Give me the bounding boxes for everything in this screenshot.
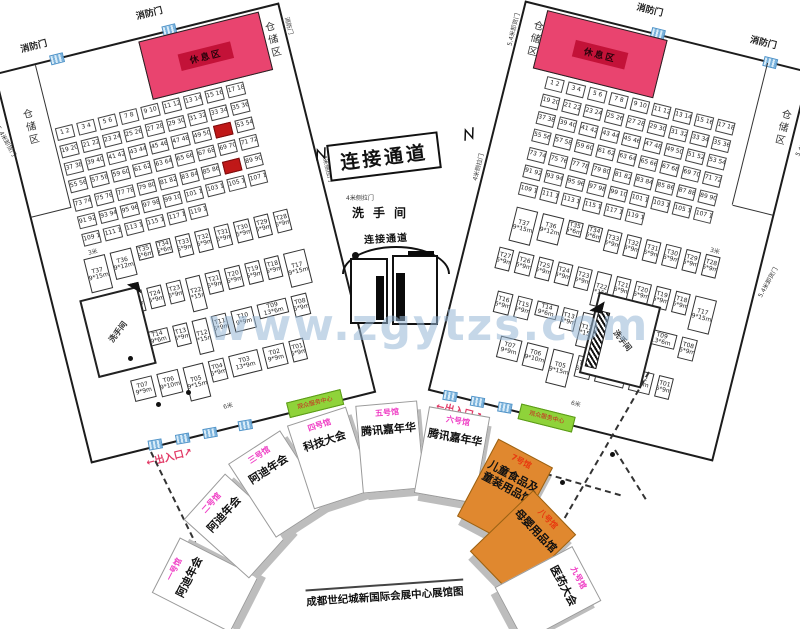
t-booth: T206*9m (224, 265, 244, 290)
restroom-wall (376, 276, 384, 320)
small-booth: 47 48 (170, 133, 191, 150)
small-booth: 99 100 (162, 191, 183, 208)
small-booth: 45 46 (149, 138, 170, 155)
t-booth: T116*9m (211, 313, 231, 338)
small-booth: 87 88 (222, 157, 243, 174)
aisle-label: 6米 (222, 400, 234, 411)
small-booth: 31 32 (668, 126, 689, 143)
small-booth: 51 52 (685, 149, 706, 166)
small-booth: 83 84 (179, 168, 200, 185)
small-booth: 53 54 (706, 154, 727, 171)
small-booth: 51 52 (213, 122, 234, 139)
small-booth: 115 116 (145, 214, 166, 231)
small-booth: 3 4 (566, 81, 587, 98)
plan-dot (156, 402, 161, 407)
t-booth: T356*6m (565, 220, 583, 238)
small-booth: 77 78 (569, 157, 590, 174)
t-booth: T336*9m (174, 233, 194, 258)
t-booth: T086*9m (291, 293, 311, 318)
t-booth: T286*9m (272, 209, 292, 234)
small-booth: 91 92 (77, 212, 98, 229)
outer-restroom-label: 洗手间 (106, 319, 129, 345)
unload-door-label: 5.4米卸货门 (0, 126, 16, 158)
small-booth: 43 44 (128, 143, 149, 160)
hall-number-label: 六号馆 (445, 414, 471, 429)
t-booth: T186*9m (671, 291, 691, 316)
t-booth: T379*15m (508, 207, 538, 246)
storage-divider (732, 205, 772, 216)
small-booth: 111 112 (103, 224, 124, 241)
small-booth: 19 20 (540, 94, 561, 111)
fire-door-label: 消防门 (283, 16, 293, 35)
small-booth: 13 14 (672, 108, 693, 125)
small-booth: 91 92 (522, 164, 543, 181)
small-booth: 61 62 (595, 145, 616, 162)
t-booth: T296*9m (681, 249, 701, 274)
fire-door-icon (49, 52, 65, 65)
small-booth: 11 12 (162, 97, 183, 114)
restroom-label: 洗手间 (352, 204, 415, 221)
t-booth: T136*9m (172, 322, 192, 347)
small-booth: 85 86 (655, 178, 676, 195)
t-booth: T306*9m (233, 218, 253, 243)
small-booth: 117 118 (167, 208, 188, 225)
t-booth: T016*9m (654, 375, 674, 400)
t-booth: T0913*6m (256, 297, 289, 319)
small-booth: 55 56 (68, 177, 89, 194)
small-booth: 81 82 (612, 168, 633, 185)
plan-dot (352, 252, 359, 259)
t-booth: T179*15m (283, 249, 313, 288)
small-booth: 71 72 (239, 134, 260, 151)
small-booth: 89 90 (697, 189, 718, 206)
small-booth: 53 54 (234, 117, 255, 134)
small-booth: 33 34 (209, 104, 230, 121)
small-booth: 61 62 (132, 161, 153, 178)
small-booth: 37 38 (64, 159, 85, 176)
t-booth: T086*9m (678, 337, 698, 362)
entrance-door-icon (238, 419, 254, 431)
small-booth: 93 94 (98, 207, 119, 224)
small-booth: 107 108 (248, 170, 269, 187)
t-booth: T356*6m (135, 243, 153, 261)
small-booth: 41 42 (106, 149, 127, 166)
small-booth: 95 96 (119, 201, 140, 218)
small-booth: 49 50 (664, 143, 685, 160)
restroom-stall (350, 258, 388, 324)
t-booth: T196*9m (244, 260, 264, 285)
t-booth: T266*9m (514, 252, 534, 277)
t-booth: T149*6m (534, 300, 559, 320)
fire-door-label: 消防门 (134, 3, 163, 22)
restroom-wall (408, 251, 434, 256)
small-booth: 15 16 (694, 113, 715, 130)
small-booth: 79 80 (591, 162, 612, 179)
small-booth: 73 74 (527, 147, 548, 164)
small-booth: 23 24 (583, 104, 604, 121)
hall-event-label: 科技大会 (300, 428, 350, 455)
small-booth: 59 60 (111, 166, 132, 183)
restroom-stall (392, 255, 438, 325)
small-booth: 57 58 (89, 172, 110, 189)
t-booth: T326*9m (622, 234, 642, 259)
plan-dot (610, 452, 615, 457)
small-booth: 109 110 (81, 230, 102, 247)
small-booth: 105 106 (672, 201, 693, 218)
small-booth: 117 118 (603, 203, 624, 220)
entrance-door-icon (202, 427, 218, 439)
small-booth: 107 108 (693, 207, 714, 224)
small-booth: 85 86 (200, 163, 221, 180)
small-booth: 55 56 (531, 129, 552, 146)
small-booth: 43 44 (599, 127, 620, 144)
t-booth: T369*12m (536, 213, 564, 246)
visitor-service-box: 观众服务中心 (517, 404, 575, 433)
t-booth: T079*9m (130, 375, 156, 401)
small-booth: 93 94 (544, 169, 565, 186)
small-booth: 71 72 (702, 171, 723, 188)
t-booth: T079*9m (496, 336, 522, 362)
side-door-label: 4米侧拉门 (473, 153, 486, 181)
small-booth: 5 6 (587, 87, 608, 104)
small-booth: 111 112 (539, 187, 560, 204)
storage-area-label: 仓储区 (17, 107, 41, 148)
small-booth: 3 4 (76, 119, 97, 136)
small-booth: 29 30 (166, 115, 187, 132)
fire-door-label: 消防门 (635, 0, 664, 19)
small-booth: 101 102 (629, 191, 650, 208)
unload-door-label: 5.4米卸货门 (795, 125, 800, 157)
hall-number-label: 四号馆 (306, 416, 332, 434)
small-booth: 99 100 (608, 185, 629, 202)
small-booth: 115 116 (582, 198, 603, 215)
corridor-banner: 连接通道 (326, 131, 442, 181)
small-booth: 65 66 (175, 150, 196, 167)
t-booth: T336*9m (603, 229, 623, 254)
small-booth: 39 40 (557, 117, 578, 134)
small-booth: 105 106 (226, 175, 247, 192)
small-booth: 87 88 (676, 184, 697, 201)
t-booth: T059*15m (182, 362, 212, 401)
corridor-small-label: 连接通道 (364, 229, 409, 246)
small-booth: 27 28 (625, 115, 646, 132)
aisle-label: 6米 (570, 398, 582, 409)
small-booth: 11 12 (651, 103, 672, 120)
small-booth: 25 26 (604, 110, 625, 127)
small-booth: 67 68 (196, 145, 217, 162)
t-booth: T179*15m (687, 295, 717, 334)
plan-dot (186, 390, 191, 395)
t-booth: T069*10m (521, 342, 548, 371)
small-booth: 5 6 (98, 113, 119, 130)
small-booth: 29 30 (647, 120, 668, 137)
hall-event-label: 腾讯嘉年华 (359, 421, 419, 439)
t-booth: T016*9m (288, 338, 308, 363)
small-booth: 57 58 (552, 134, 573, 151)
small-booth: 47 48 (642, 138, 663, 155)
small-booth: 23 24 (102, 131, 123, 148)
small-booth: 101 102 (184, 186, 205, 203)
unload-door-label: 5.4米卸货门 (758, 267, 780, 299)
t-booth: T286*9m (701, 254, 721, 279)
fire-door-label: 消防门 (749, 32, 778, 51)
small-booth: 19 20 (59, 142, 80, 159)
small-booth: 1 2 (55, 124, 76, 141)
t-booth: T059*15m (545, 349, 575, 388)
t-booth: T306*9m (661, 244, 681, 269)
small-booth: 67 68 (659, 161, 680, 178)
t-booth: T236*9m (165, 280, 185, 305)
hall-event-label: 腾讯嘉年华 (425, 426, 485, 449)
t-booth: T186*9m (263, 255, 283, 280)
t-booth: T156*9m (513, 295, 533, 320)
small-booth: 35 36 (230, 99, 251, 116)
small-booth: 25 26 (123, 126, 144, 143)
small-booth: 17 18 (226, 81, 247, 98)
floor-plan-canvas: 消防门 消防门 休息区 仓储区 仓储区 1 23 45 67 89 1011 1… (0, 0, 800, 629)
small-booth: 59 60 (574, 140, 595, 157)
small-booth: 21 22 (81, 136, 102, 153)
small-booth: 83 84 (633, 173, 654, 190)
t-booth: T379*15m (83, 254, 113, 293)
small-booth: 113 114 (561, 192, 582, 209)
t-booth: T109*9m (230, 306, 256, 332)
small-booth: 69 70 (680, 166, 701, 183)
small-booth: 39 40 (85, 154, 106, 171)
t-booth: T256*9m (534, 256, 554, 281)
small-booth: 33 34 (689, 131, 710, 148)
small-booth: 1 2 (544, 76, 565, 93)
plan-dot (128, 356, 133, 361)
t-booth: T046*9m (208, 358, 228, 383)
t-booth: T226*15m (185, 275, 208, 313)
small-booth: 73 74 (72, 194, 93, 211)
outer-restroom-label: 洗手间 (611, 328, 634, 354)
small-booth: 79 80 (136, 179, 157, 196)
small-booth: 9 10 (630, 97, 651, 114)
t-booth: T236*9m (573, 266, 593, 291)
t-booth: T326*9m (194, 228, 214, 253)
t-booth: T346*6m (155, 238, 173, 256)
small-booth: 103 104 (205, 180, 226, 197)
t-booth: T346*6m (585, 224, 603, 242)
small-booth: 95 96 (565, 175, 586, 192)
small-booth: 63 64 (153, 156, 174, 173)
small-booth: 77 78 (115, 184, 136, 201)
t-booth: T069*10m (156, 369, 183, 398)
fire-door-icon (762, 56, 778, 69)
small-booth: 65 66 (638, 156, 659, 173)
small-booth: 21 22 (561, 99, 582, 116)
small-booth: 109 110 (518, 182, 539, 199)
small-booth: 31 32 (187, 110, 208, 127)
small-booth: 89 90 (243, 152, 264, 169)
plan-dot (560, 480, 565, 485)
fire-door-label: 消防门 (19, 36, 48, 55)
small-booth: 41 42 (578, 122, 599, 139)
t-booth: T126*15m (191, 317, 214, 355)
small-booth: 37 38 (535, 111, 556, 128)
small-booth: 35 36 (711, 136, 732, 153)
t-booth: T216*9m (205, 270, 225, 295)
fan-hall-5: 五号馆 腾讯嘉年华 (355, 400, 424, 493)
t-booth: T369*12m (109, 248, 137, 281)
entrance-door-icon (148, 438, 164, 450)
rest-area-label: 休息区 (178, 41, 234, 70)
small-booth: 103 104 (650, 196, 671, 213)
t-booth: T316*9m (214, 223, 234, 248)
side-door-label: 4米侧拉门 (346, 196, 374, 202)
small-booth: 69 70 (217, 140, 238, 157)
small-booth: 113 114 (124, 219, 145, 236)
t-booth: T029*9m (262, 342, 288, 368)
t-booth: T296*9m (253, 213, 273, 238)
small-booth: 15 16 (204, 87, 225, 104)
storage-divider (31, 207, 71, 218)
small-booth: 119 120 (188, 203, 209, 220)
t-booth: T276*9m (495, 247, 515, 272)
small-booth: 75 76 (548, 152, 569, 169)
t-booth: T136*9m (558, 307, 578, 332)
t-booth: T246*9m (146, 284, 166, 309)
unload-door-label: 5.4米卸货门 (507, 13, 521, 47)
small-booth: 7 8 (608, 92, 629, 109)
t-booth: T316*9m (642, 239, 662, 264)
plan-caption: 成都世纪城新国际会展中心展馆图 (305, 579, 464, 610)
t-booth: T0313*9m (228, 349, 263, 378)
right-hall: 消防门 消防门 休息区 仓储区 仓储区 1 23 45 67 89 1011 1… (428, 0, 800, 461)
small-booth: 97 98 (141, 196, 162, 213)
t-booth: T166*9m (493, 291, 513, 316)
small-booth: 7 8 (119, 108, 140, 125)
small-booth: 45 46 (621, 133, 642, 150)
boundary-dashed-line (614, 449, 646, 499)
small-booth: 119 120 (625, 208, 646, 225)
t-booth: T246*9m (553, 261, 573, 286)
small-booth: 81 82 (158, 173, 179, 190)
entrance-door-icon (497, 401, 513, 413)
small-booth: 27 28 (145, 120, 166, 137)
small-booth: 17 18 (715, 119, 736, 136)
small-booth: 63 64 (616, 150, 637, 167)
small-booth: 13 14 (183, 92, 204, 109)
storage-area-label: 仓储区 (769, 107, 793, 148)
small-booth: 9 10 (140, 103, 161, 120)
corridor-end-mark-icon (460, 124, 479, 144)
restroom-wall (396, 273, 405, 321)
rest-area-label: 休息区 (572, 40, 628, 69)
small-booth: 49 50 (192, 127, 213, 144)
small-booth: 75 76 (94, 189, 115, 206)
small-booth: 97 98 (586, 180, 607, 197)
hall-number-label: 五号馆 (375, 406, 400, 419)
